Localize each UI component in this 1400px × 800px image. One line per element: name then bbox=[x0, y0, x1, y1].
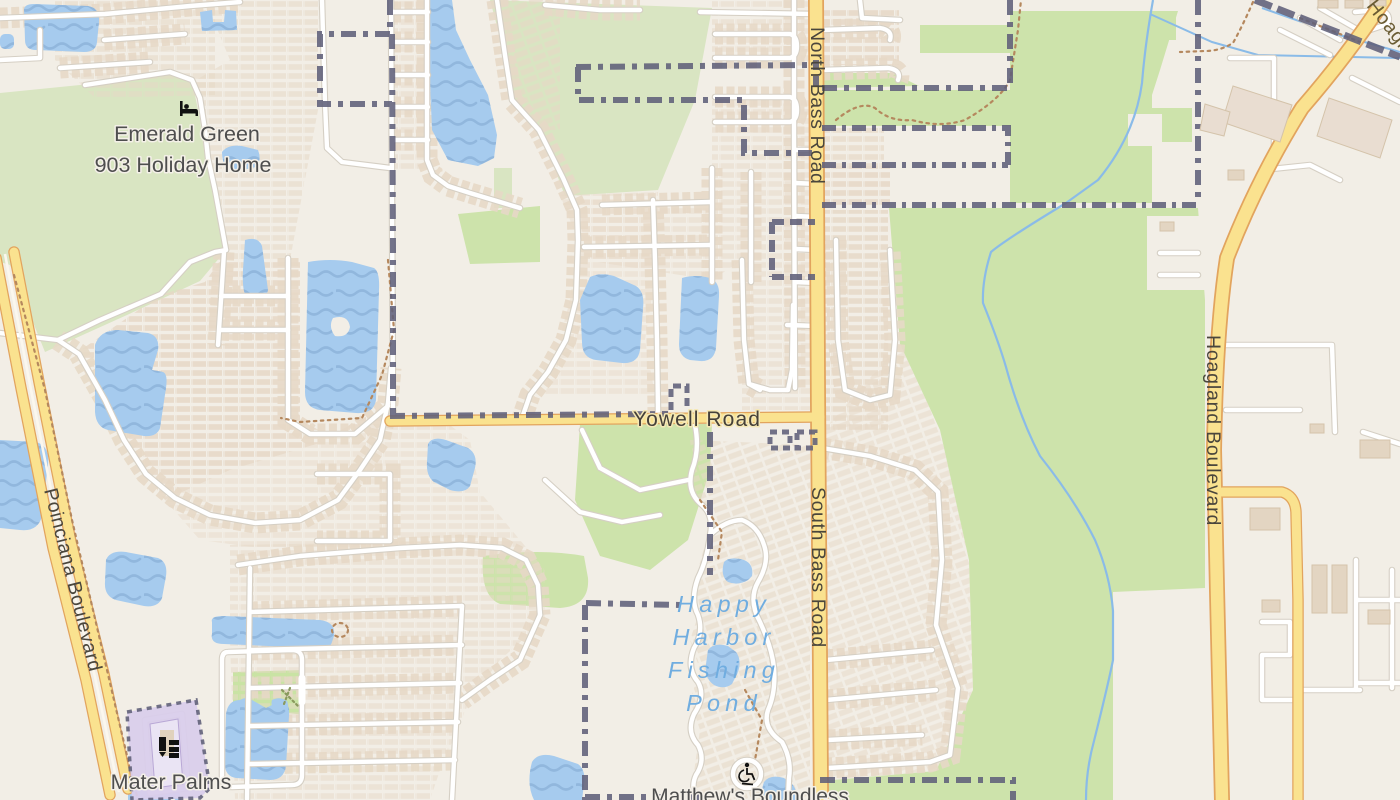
svg-text:Fishing: Fishing bbox=[668, 657, 780, 683]
svg-text:Harbor: Harbor bbox=[672, 624, 775, 650]
svg-text:Matthew's Boundless: Matthew's Boundless bbox=[651, 785, 849, 800]
svg-text:North Bass Road: North Bass Road bbox=[806, 27, 828, 185]
svg-text:Hoagland Boulevard: Hoagland Boulevard bbox=[1202, 335, 1224, 526]
svg-text:Yowell Road: Yowell Road bbox=[633, 408, 761, 431]
svg-text:Pond: Pond bbox=[686, 690, 762, 716]
svg-text:South Bass Road: South Bass Road bbox=[807, 487, 829, 648]
svg-text:Emerald Green: Emerald Green bbox=[114, 122, 260, 146]
svg-text:Happy: Happy bbox=[677, 591, 771, 617]
svg-text:Mater Palms: Mater Palms bbox=[111, 770, 232, 794]
svg-text:903 Holiday Home: 903 Holiday Home bbox=[95, 153, 272, 177]
